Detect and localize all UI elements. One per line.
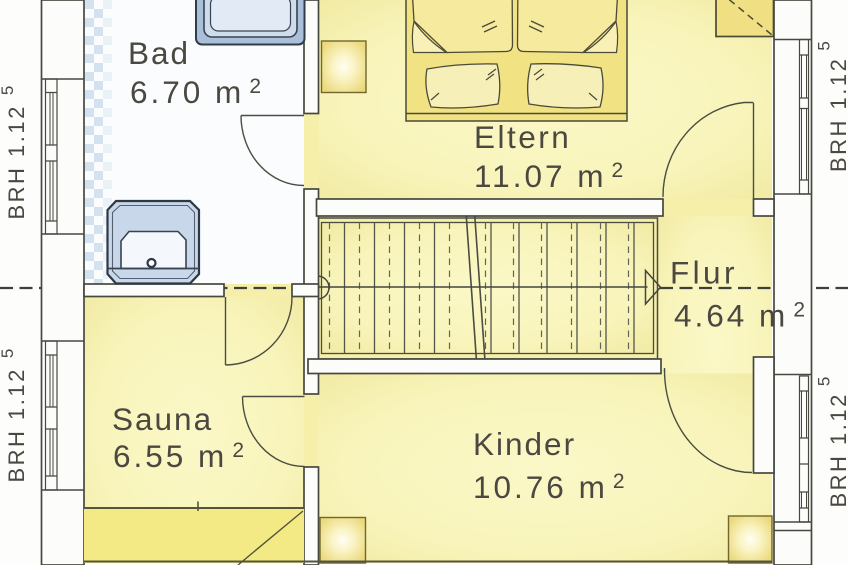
svg-text:Kinder: Kinder [473,426,576,462]
svg-text:Eltern: Eltern [474,119,571,155]
svg-text:Sauna: Sauna [112,401,213,437]
svg-text:11.07 m2: 11.07 m2 [474,158,626,194]
svg-text:6.70 m2: 6.70 m2 [130,74,264,110]
svg-text:Flur: Flur [670,255,738,291]
svg-text:4.64 m2: 4.64 m2 [674,298,808,334]
svg-text:10.76 m2: 10.76 m2 [473,469,628,505]
svg-text:Bad: Bad [128,35,190,71]
svg-text:6.55 m2: 6.55 m2 [113,438,247,474]
